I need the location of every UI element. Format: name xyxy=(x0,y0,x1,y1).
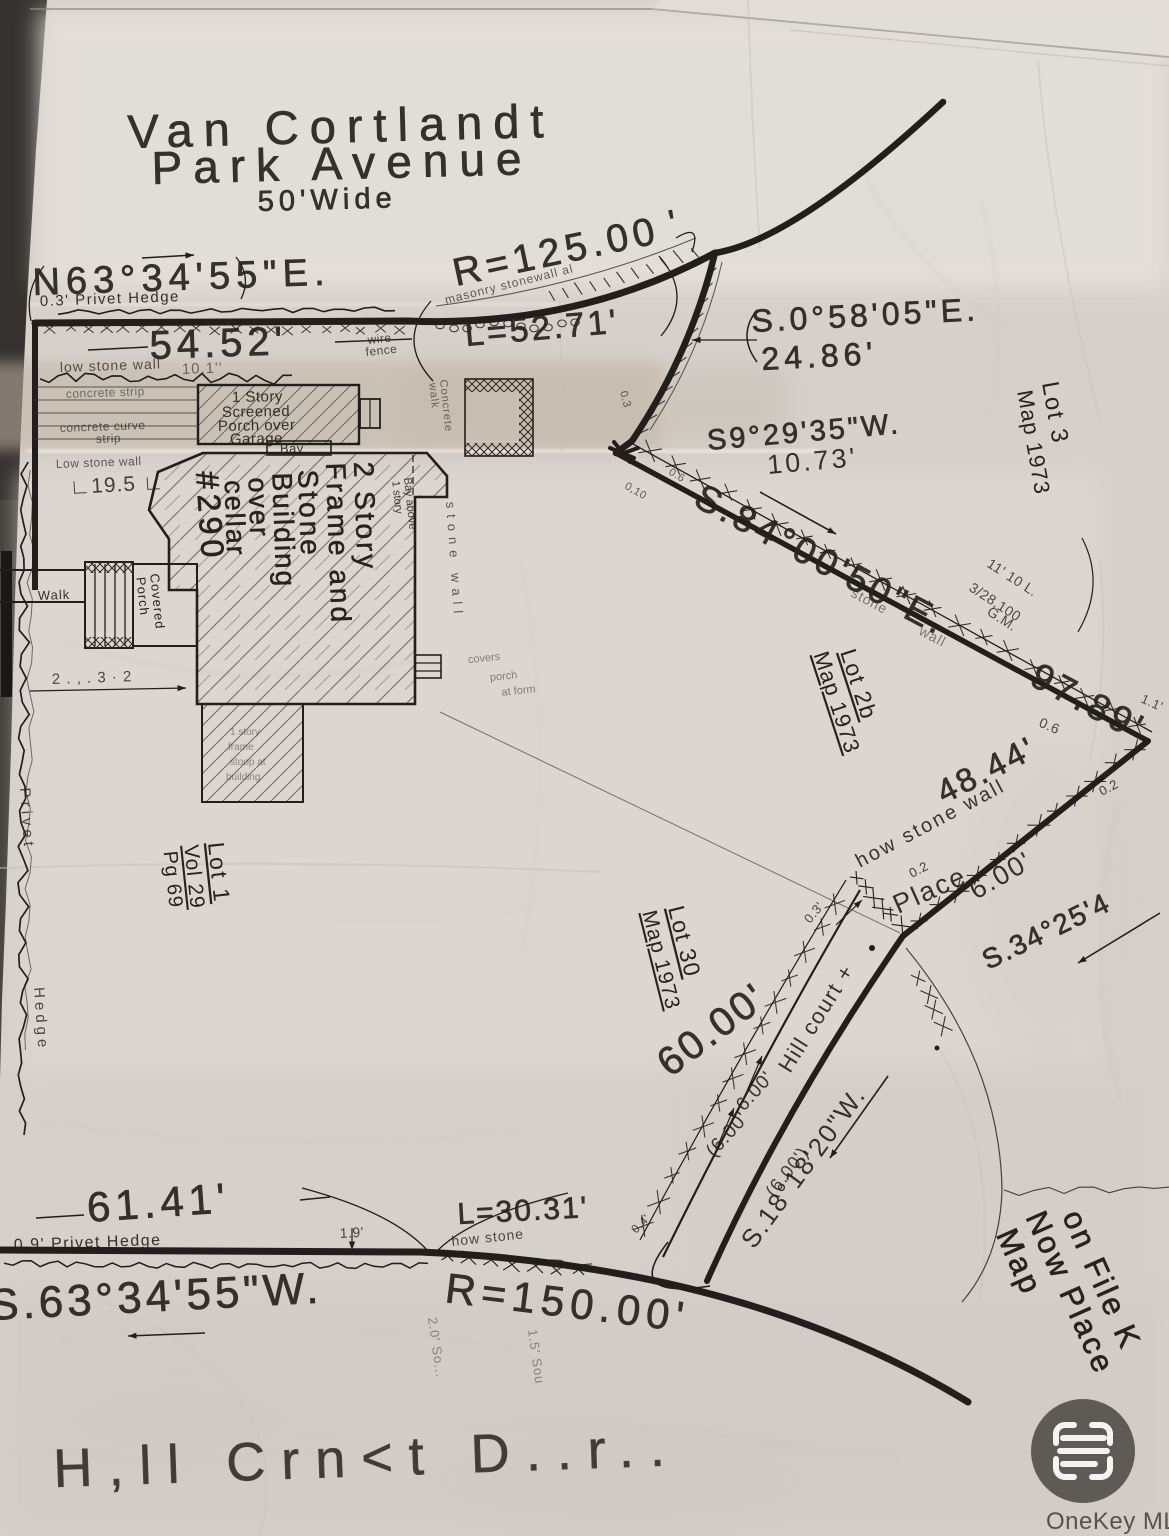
svg-text:2 . , . 3 · 2: 2 . , . 3 · 2 xyxy=(52,668,133,688)
svg-text:frame: frame xyxy=(228,742,254,753)
svg-text:Walk: Walk xyxy=(38,587,71,603)
svg-text:concrete strip: concrete strip xyxy=(66,384,145,401)
svg-text:Garage: Garage xyxy=(230,430,283,448)
svg-text:stoop at: stoop at xyxy=(230,757,266,768)
svg-text:1 story: 1 story xyxy=(230,727,260,738)
svg-text:Low stone wall: Low stone wall xyxy=(56,454,142,471)
svg-text:strip: strip xyxy=(96,431,122,446)
svg-text:10.1'': 10.1'' xyxy=(182,360,223,378)
svg-text:cellar: cellar xyxy=(219,480,252,558)
svg-text:24.86': 24.86' xyxy=(760,335,878,377)
svg-text:building: building xyxy=(226,772,260,783)
svg-text:Bay: Bay xyxy=(280,441,304,456)
svg-text:50'Wide: 50'Wide xyxy=(257,182,397,218)
svg-text:OneKey MLS: OneKey MLS xyxy=(1046,1508,1169,1535)
svg-text:61.41': 61.41' xyxy=(85,1174,231,1231)
svg-text:1.9': 1.9' xyxy=(339,1224,364,1241)
